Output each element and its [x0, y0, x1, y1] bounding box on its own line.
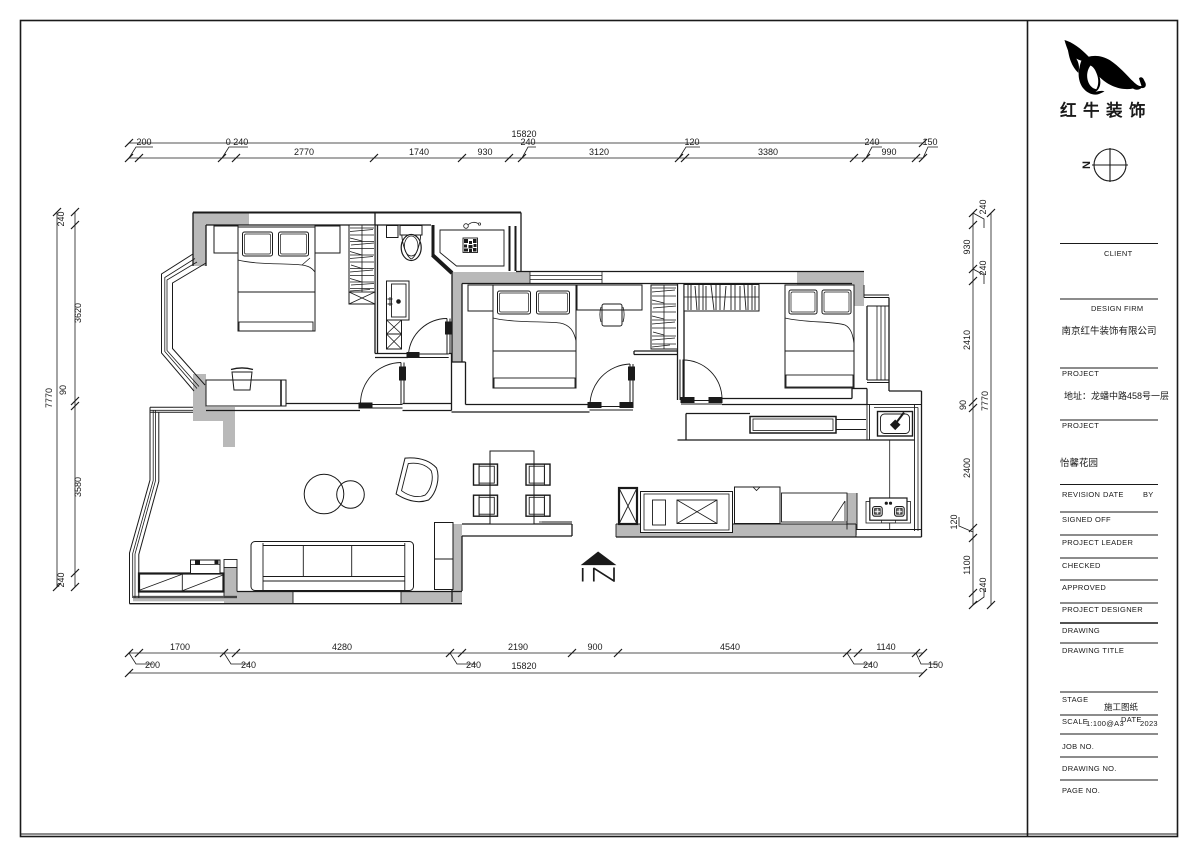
svg-text:怡馨花园: 怡馨花园: [1060, 457, 1098, 469]
svg-text:SCALE: SCALE: [1062, 717, 1088, 726]
svg-text:1740: 1740: [409, 147, 429, 157]
svg-text:930: 930: [962, 239, 972, 254]
svg-text:3380: 3380: [758, 147, 778, 157]
svg-text:240: 240: [978, 577, 988, 592]
svg-text:90: 90: [58, 385, 68, 395]
svg-text:240: 240: [56, 572, 66, 587]
svg-text:BY: BY: [1143, 490, 1154, 499]
svg-text:120: 120: [684, 137, 699, 147]
svg-text:240: 240: [241, 660, 256, 670]
svg-text:7770: 7770: [44, 388, 54, 408]
svg-text:930: 930: [477, 147, 492, 157]
svg-text:CLIENT: CLIENT: [1104, 249, 1133, 258]
svg-text:DESIGN FIRM: DESIGN FIRM: [1091, 304, 1143, 313]
svg-text:240: 240: [978, 199, 988, 214]
svg-text:240: 240: [864, 137, 879, 147]
svg-text:1100: 1100: [962, 555, 972, 574]
svg-text:SIGNED OFF: SIGNED OFF: [1062, 515, 1111, 524]
svg-text:15820: 15820: [511, 661, 536, 671]
svg-text:DRAWING NO.: DRAWING NO.: [1062, 764, 1117, 773]
svg-text:150: 150: [922, 137, 937, 147]
svg-text:7770: 7770: [980, 391, 990, 411]
svg-text:240: 240: [863, 660, 878, 670]
svg-text:4280: 4280: [332, 642, 352, 652]
svg-text:200: 200: [136, 137, 151, 147]
svg-text:1:100@A3: 1:100@A3: [1086, 719, 1124, 728]
svg-text:地址：龙蟠中路458号一层: 地址：龙蟠中路458号一层: [1064, 390, 1169, 401]
svg-text:2770: 2770: [294, 147, 314, 157]
svg-text:120: 120: [949, 514, 959, 529]
svg-text:2190: 2190: [508, 642, 528, 652]
svg-text:90: 90: [958, 400, 968, 410]
svg-text:CHECKED: CHECKED: [1062, 561, 1101, 570]
svg-text:200: 200: [145, 660, 160, 670]
svg-text:1140: 1140: [876, 642, 895, 652]
svg-text:1700: 1700: [170, 642, 190, 652]
svg-text:3620: 3620: [73, 303, 83, 323]
svg-text:REVISION: REVISION: [1062, 490, 1100, 499]
svg-text:红牛装饰: 红牛装饰: [1060, 100, 1152, 120]
svg-text:PAGE NO.: PAGE NO.: [1062, 786, 1100, 795]
svg-text:240: 240: [520, 137, 535, 147]
svg-text:DRAWING TITLE: DRAWING TITLE: [1062, 646, 1124, 655]
svg-text:PROJECT DESIGNER: PROJECT DESIGNER: [1062, 605, 1143, 614]
svg-text:990: 990: [881, 147, 896, 157]
svg-text:N: N: [1081, 161, 1093, 169]
svg-text:DRAWING: DRAWING: [1062, 626, 1100, 635]
svg-text:240: 240: [466, 660, 481, 670]
svg-text:PROJECT LEADER: PROJECT LEADER: [1062, 538, 1133, 547]
svg-text:STAGE: STAGE: [1062, 695, 1088, 704]
svg-text:2023: 2023: [1140, 719, 1158, 728]
svg-text:2400: 2400: [962, 458, 972, 478]
svg-text:PROJECT: PROJECT: [1062, 421, 1099, 430]
svg-text:150: 150: [928, 660, 943, 670]
svg-text:240: 240: [978, 260, 988, 275]
svg-text:PROJECT: PROJECT: [1062, 369, 1099, 378]
svg-text:900: 900: [587, 642, 602, 652]
svg-text:3580: 3580: [73, 477, 83, 497]
svg-text:JOB NO.: JOB NO.: [1062, 742, 1094, 751]
svg-text:2410: 2410: [962, 330, 972, 350]
svg-text:DATE: DATE: [1103, 490, 1124, 499]
svg-text:南京红牛装饰有限公司: 南京红牛装饰有限公司: [1061, 325, 1156, 337]
svg-text:240: 240: [56, 211, 66, 226]
svg-text:3120: 3120: [589, 147, 609, 157]
svg-text:DATE: DATE: [1121, 715, 1142, 724]
svg-text:0 240: 0 240: [226, 137, 249, 147]
svg-text:施工图纸: 施工图纸: [1104, 702, 1139, 712]
svg-text:4540: 4540: [720, 642, 740, 652]
svg-text:APPROVED: APPROVED: [1062, 583, 1106, 592]
